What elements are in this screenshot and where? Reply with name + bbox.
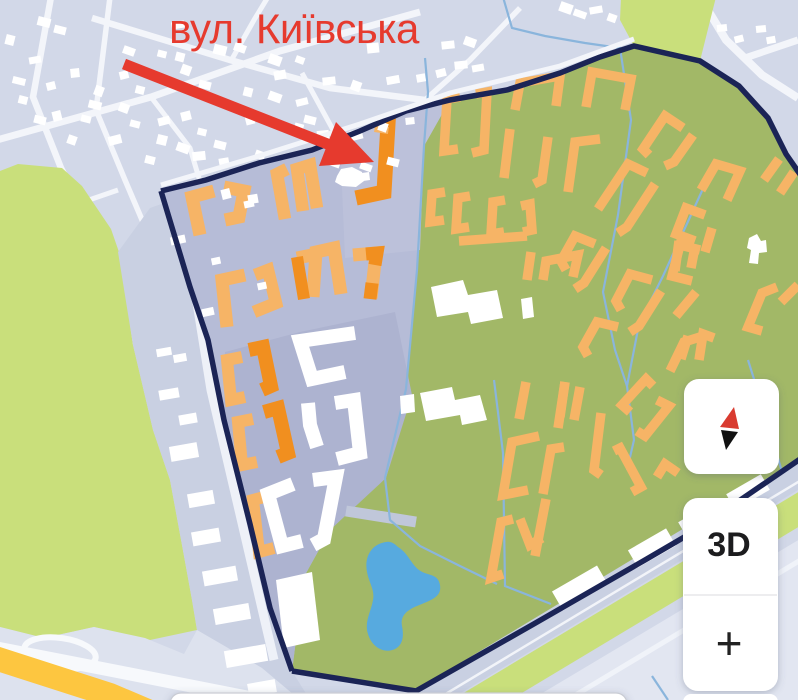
- svg-text:+: +: [716, 617, 743, 669]
- svg-text:3D: 3D: [707, 526, 750, 564]
- svg-text:вул. Київська: вул. Київська: [169, 5, 420, 52]
